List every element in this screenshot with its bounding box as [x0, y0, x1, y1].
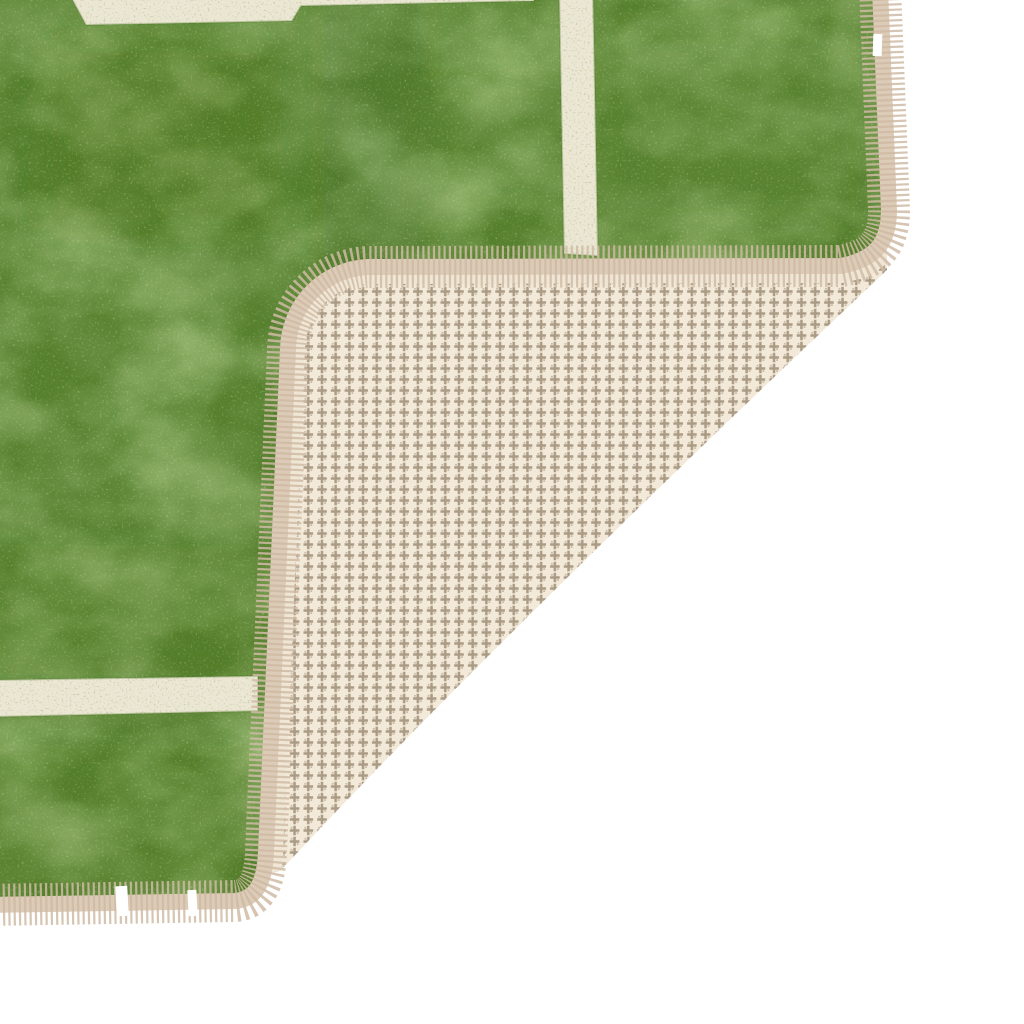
binding-notch [115, 886, 129, 917]
binding-notch [187, 890, 197, 916]
rug-product-photo [0, 0, 1024, 1024]
product-photo-stage [0, 0, 1024, 1024]
binding-notch [873, 34, 883, 56]
